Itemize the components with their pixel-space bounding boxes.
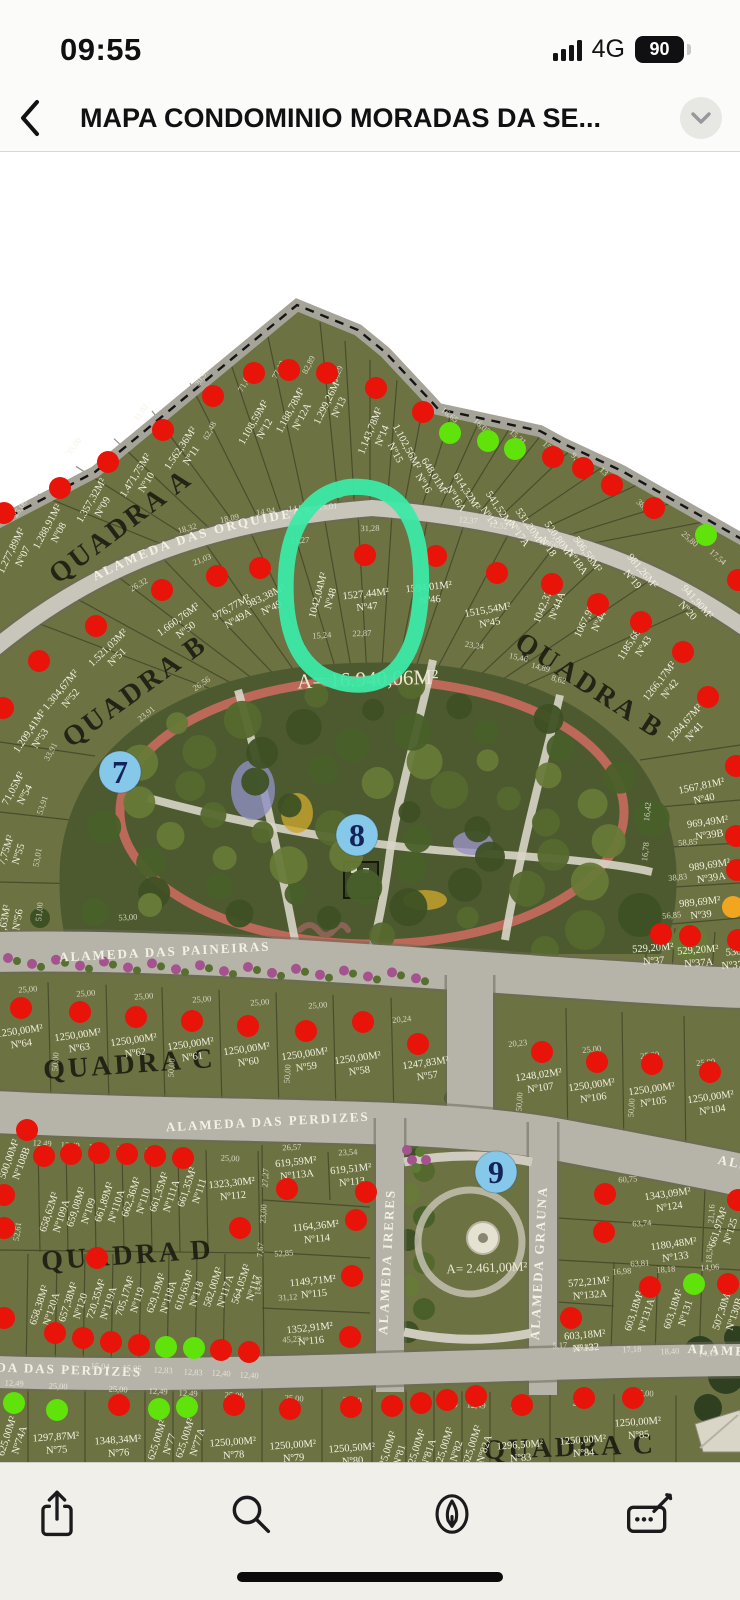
lot-status-dot [541, 573, 563, 595]
lot-status-dot [355, 1181, 377, 1203]
dimension-label: 23,00 [257, 1204, 268, 1224]
search-icon [227, 1490, 275, 1538]
lot-status-dot [151, 579, 173, 601]
clock-time: 09:55 [60, 32, 142, 68]
lot-status-dot [341, 1265, 363, 1287]
dimension-label: 26,57 [282, 1142, 302, 1153]
dimension-label: 14,06 [700, 1261, 720, 1272]
lot-status-dot [560, 1307, 582, 1329]
lot-status-dot [594, 1183, 616, 1205]
dimension-label: 12,49 [4, 1378, 24, 1389]
dimension-label: 12,49 [148, 1386, 168, 1397]
lot-status-dot [278, 359, 300, 381]
lot-status-dot [116, 1143, 138, 1165]
lot-status-dot [28, 650, 50, 672]
lot-status-dot [587, 593, 609, 615]
lot-status-dot [125, 1006, 147, 1028]
lot-status-dot [210, 1339, 232, 1361]
dimension-label: 15,04 [90, 1361, 110, 1372]
lot-status-dot [100, 1331, 122, 1353]
lot-status-dot [622, 1387, 644, 1409]
map-image[interactable]: QUADRA AQUADRA BQUADRA BQUADRA CQUADRA D… [0, 152, 740, 1462]
lot-status-dot [97, 451, 119, 473]
phone-screen: 09:55 4G 90 MAPA CONDOMINIO MORADAS DA S… [0, 0, 740, 1600]
lot-status-dot [683, 1273, 705, 1295]
share-icon [34, 1488, 80, 1540]
lot-status-dot [699, 1061, 721, 1083]
lot-status-dot [639, 1276, 661, 1298]
lot-status-dot [33, 1145, 55, 1167]
dimension-label: 31,12 [278, 1291, 298, 1302]
dimension-label: 25,00 [18, 983, 38, 994]
lot-status-dot [316, 362, 338, 384]
lot-status-dot [572, 457, 594, 479]
lot-status-dot [365, 377, 387, 399]
dimension-label: 25,00 [134, 990, 154, 1001]
lot-status-dot [531, 1041, 553, 1063]
markup-button[interactable] [422, 1485, 482, 1545]
chevron-down-icon [690, 111, 712, 125]
lot-status-dot [155, 1336, 177, 1358]
lot-status-dot [465, 1385, 487, 1407]
dimension-label: 18,18 [656, 1263, 676, 1274]
share-button[interactable] [27, 1485, 87, 1545]
lot-status-dot [69, 1001, 91, 1023]
lot-status-dot [183, 1337, 205, 1359]
lot-status-dot [279, 1398, 301, 1420]
dimension-label: 20,24 [392, 1013, 413, 1025]
lot-status-dot [354, 544, 376, 566]
lot-status-dot [436, 1389, 458, 1411]
poi-number: 9 [488, 1154, 504, 1190]
dimension-label: 16,98 [612, 1265, 632, 1276]
dimension-label: 22,87 [352, 628, 371, 639]
dimension-label: 23,54 [338, 1146, 358, 1157]
dimension-label: 20,23 [508, 1037, 528, 1049]
lot-status-dot [486, 562, 508, 584]
dimension-label: 52,85 [274, 1247, 294, 1258]
dimension-label: 25,00 [48, 1381, 68, 1392]
lot-status-dot [697, 686, 719, 708]
network-type-label: 4G [592, 35, 625, 64]
dimension-label: 50,00 [49, 1052, 60, 1072]
dimension-label: 25,00 [220, 1153, 240, 1164]
dimension-label: 53,00 [118, 912, 138, 923]
lot-status-dot [695, 524, 717, 546]
dimension-label: 17,18 [622, 1344, 642, 1355]
lot-status-dot [3, 1392, 25, 1414]
dimension-label: 63,81 [630, 1257, 650, 1268]
lot-status-dot [237, 1015, 259, 1037]
lot-status-dot [86, 1247, 108, 1269]
dimension-label: 15,24 [312, 629, 333, 640]
lot-status-dot [542, 446, 564, 468]
dimension-label: 12,37 [458, 514, 478, 526]
lot-status-dot [238, 1341, 260, 1363]
dimension-label: 50,00 [165, 1058, 176, 1078]
dimension-label: 7,67 [255, 1242, 266, 1258]
lot-status-dot [345, 1209, 367, 1231]
dimension-label: 31,28 [360, 523, 379, 533]
lot-status-dot [717, 1273, 739, 1295]
lot-status-dot [181, 1010, 203, 1032]
lot-status-dot [407, 1033, 429, 1055]
lot-status-dot [593, 1221, 615, 1243]
dimension-label: 18,40 [660, 1346, 680, 1357]
lot-status-dot [340, 1396, 362, 1418]
lot-status-dot [10, 997, 32, 1019]
poi-number: 7 [112, 754, 128, 790]
status-bar: 09:55 4G 90 [0, 0, 740, 85]
area-label: A= 2.461,00M² [446, 1259, 528, 1277]
lot-status-dot [641, 1053, 663, 1075]
lot-status-dot [511, 1394, 533, 1416]
dimension-label: 38,83 [668, 871, 688, 883]
lot-status-dot [229, 1217, 251, 1239]
lot-status-dot [352, 1011, 374, 1033]
lot-status-dot [72, 1327, 94, 1349]
dimension-label: 12,83 [153, 1365, 173, 1376]
dimension-label: 51,00 [33, 902, 45, 922]
lot-status-dot [44, 1322, 66, 1344]
lot-status-dot [176, 1396, 198, 1418]
dimension-label: 12,40 [239, 1370, 259, 1381]
dimension-label: 15,05 [122, 1363, 142, 1374]
lot-status-dot [643, 497, 665, 519]
lot-status-dot [128, 1334, 150, 1356]
dimension-label: 25,00 [192, 993, 212, 1004]
lot-status-dot [679, 925, 701, 947]
lot-status-dot [202, 385, 224, 407]
dimension-label: 63,74 [632, 1217, 653, 1228]
lot-status-dot [60, 1143, 82, 1165]
lot-status-dot [504, 438, 526, 460]
lot-status-dot [46, 1399, 68, 1421]
lot-status-dot [586, 1051, 608, 1073]
markup-pen-icon [428, 1488, 476, 1540]
battery-indicator: 90 [635, 36, 684, 63]
lot-status-dot [412, 401, 434, 423]
search-button[interactable] [221, 1485, 281, 1545]
dimension-label: 16,78 [639, 842, 651, 862]
lot-status-dot [88, 1142, 110, 1164]
dimension-label: 50,00 [513, 1092, 524, 1112]
dimension-label: 14,15 [698, 1348, 718, 1359]
nav-bar: MAPA CONDOMINIO MORADAS DA SE... [0, 85, 740, 152]
lot-status-dot [439, 422, 461, 444]
lot-status-dot [601, 474, 623, 496]
chevron-left-icon [18, 98, 42, 138]
dimension-label: 25,00 [308, 999, 328, 1010]
collapse-button[interactable] [680, 97, 722, 139]
compose-button[interactable] [620, 1485, 680, 1545]
dimension-label: 16,42 [641, 802, 653, 822]
dimension-label: 25,00 [76, 987, 96, 998]
lot-status-dot [172, 1147, 194, 1169]
dimension-label: 25,00 [250, 996, 270, 1007]
compose-icon [624, 1490, 676, 1538]
lot-status-dot [206, 565, 228, 587]
lot-status-dot [223, 1394, 245, 1416]
dimension-label: 50,00 [281, 1064, 292, 1084]
back-button[interactable] [18, 93, 62, 143]
dimension-label: 27,27 [259, 1168, 270, 1188]
lot-status-dot [144, 1145, 166, 1167]
page-title: MAPA CONDOMINIO MORADAS DA SE... [80, 103, 680, 134]
lot-status-dot [249, 557, 271, 579]
lot-status-dot [477, 430, 499, 452]
lot-status-dot [630, 611, 652, 633]
dimension-label: 56,85 [662, 909, 682, 921]
lot-status-dot [49, 477, 71, 499]
lot-status-dot [108, 1394, 130, 1416]
map-viewer[interactable]: QUADRA AQUADRA BQUADRA BQUADRA CQUADRA D… [0, 152, 740, 1462]
lot-status-dot [85, 615, 107, 637]
dimension-label: 60,75 [618, 1173, 638, 1184]
dimension-label: 50,00 [625, 1098, 636, 1118]
lot-status-dot [243, 362, 265, 384]
lot-status-dot [148, 1398, 170, 1420]
lot-status-dot [16, 1119, 38, 1141]
lot-status-dot [650, 923, 672, 945]
dimension-label: 25,00 [108, 1384, 128, 1395]
status-indicators: 4G 90 [553, 35, 684, 64]
poi-number: 8 [349, 817, 365, 853]
cellular-signal-icon [553, 39, 582, 61]
lot-status-dot [410, 1392, 432, 1414]
dimension-label: 12,83 [183, 1367, 203, 1378]
lot-status-dot [295, 1020, 317, 1042]
lot-status-dot [573, 1387, 595, 1409]
lot-status-dot [339, 1326, 361, 1348]
lot-status-dot [152, 419, 174, 441]
dimension-label: 12,40 [211, 1368, 231, 1379]
lot-status-dot [381, 1395, 403, 1417]
lot-status-dot [276, 1178, 298, 1200]
lot-status-dot [672, 641, 694, 663]
home-indicator[interactable] [237, 1572, 503, 1582]
